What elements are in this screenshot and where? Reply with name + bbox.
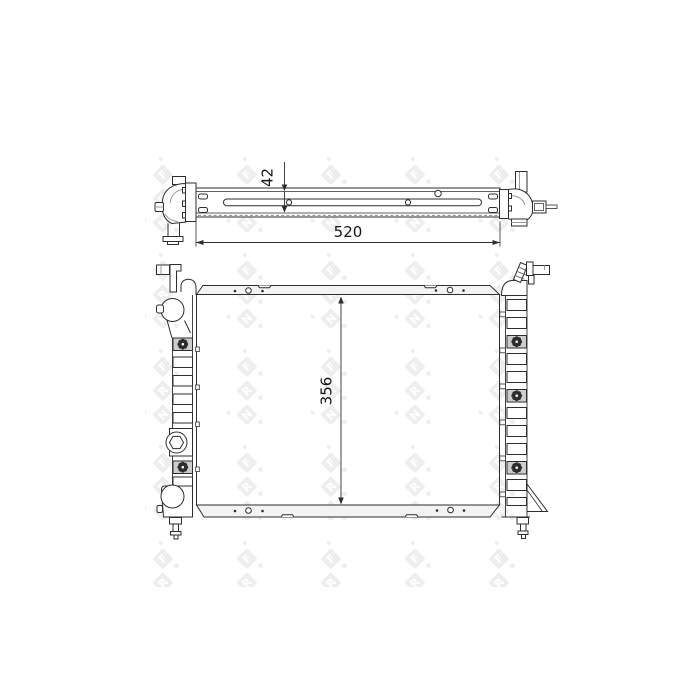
height-label: 356 [318,377,336,406]
front-bottom-header [197,505,500,517]
front-top-header [197,286,500,295]
product-image-canvas: N R F [0,0,700,700]
radiator-technical-drawing: N R F [0,0,700,700]
depth-label: 42 [259,168,277,187]
top-view-core [196,188,500,217]
width-label: 520 [334,223,363,241]
